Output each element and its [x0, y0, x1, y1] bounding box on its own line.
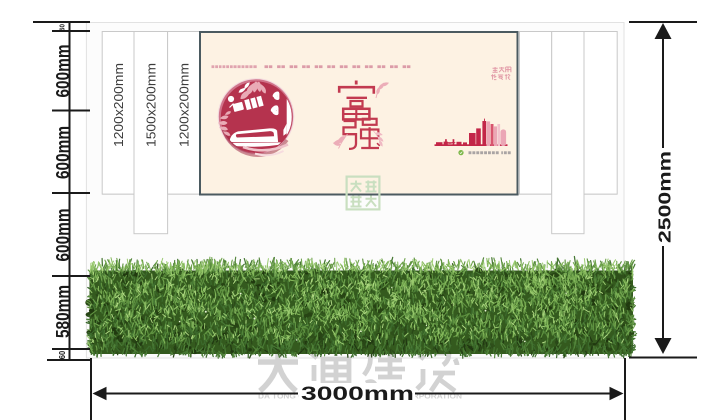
- svg-text:60: 60: [58, 24, 67, 31]
- svg-text:1500x200mm: 1500x200mm: [144, 63, 159, 147]
- svg-text:1200x200mm: 1200x200mm: [111, 63, 126, 147]
- svg-text:3000mm: 3000mm: [301, 384, 414, 405]
- svg-text:1200x200mm: 1200x200mm: [177, 63, 192, 147]
- svg-text:600mm: 600mm: [53, 209, 73, 262]
- svg-text:600mm: 600mm: [53, 45, 73, 98]
- svg-text:580mm: 580mm: [53, 285, 73, 338]
- svg-text:600mm: 600mm: [53, 126, 73, 179]
- svg-text:2500mm: 2500mm: [655, 151, 675, 243]
- svg-text:60: 60: [57, 350, 67, 359]
